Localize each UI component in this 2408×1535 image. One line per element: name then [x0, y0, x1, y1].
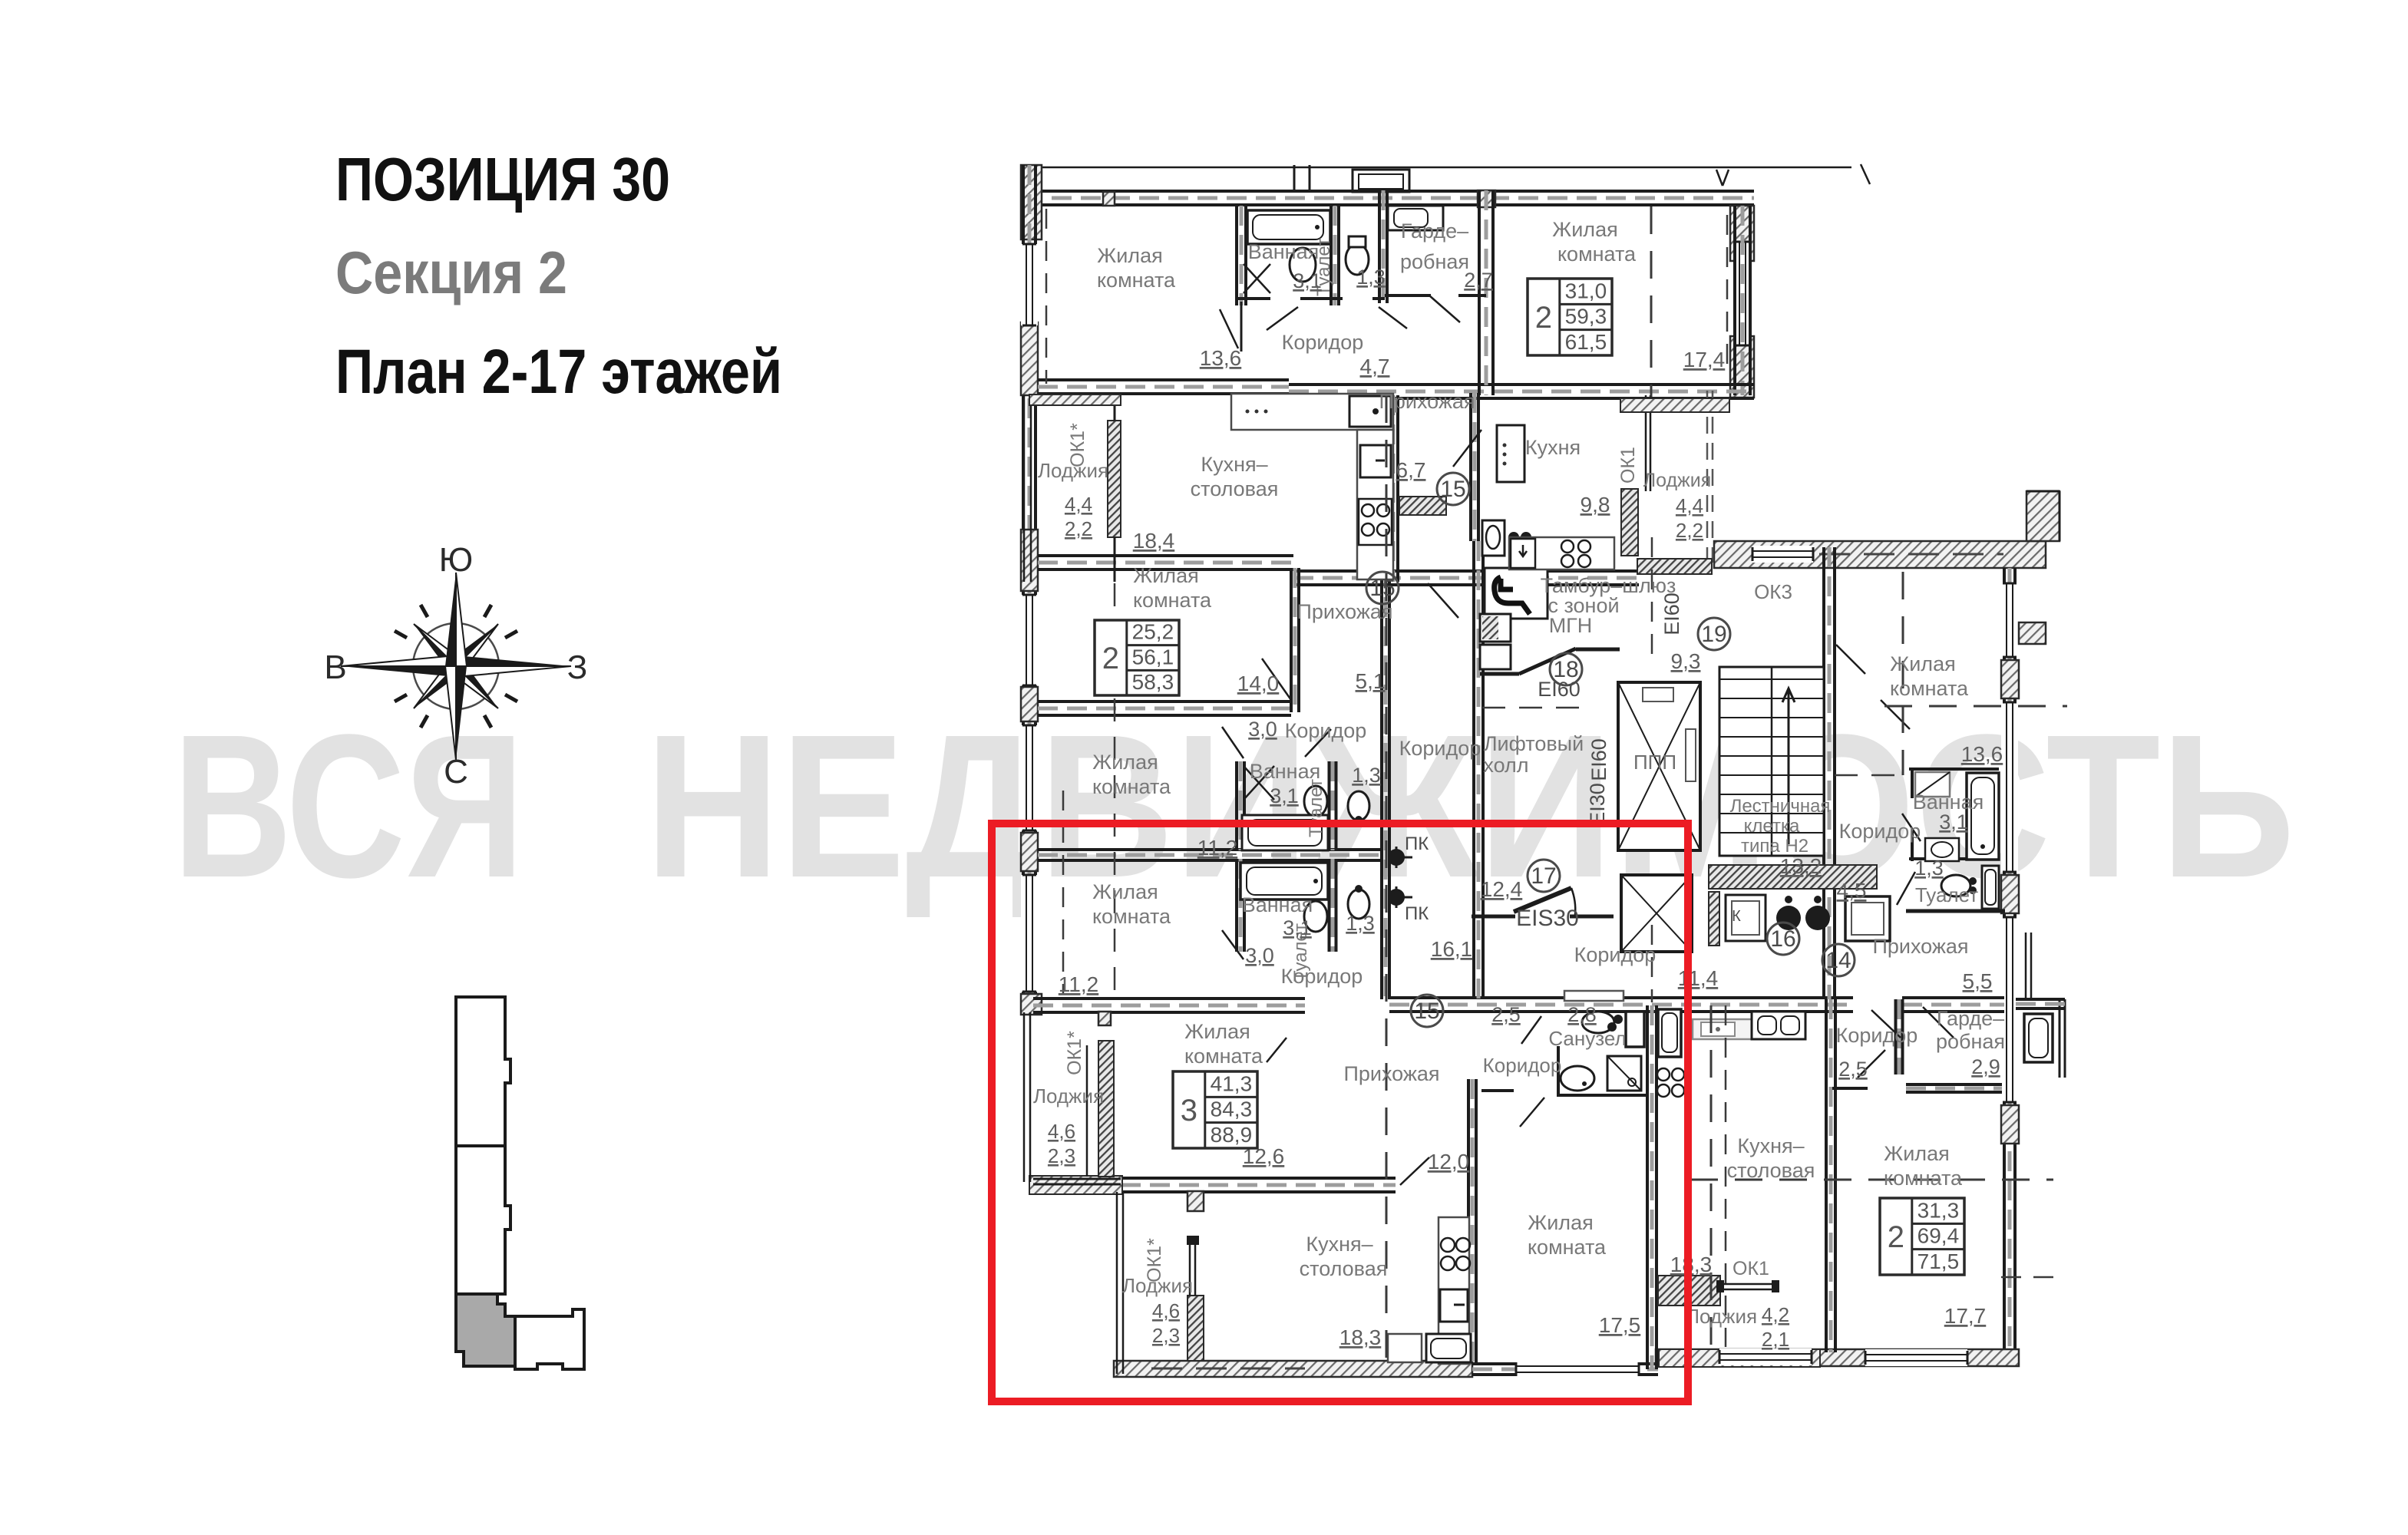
svg-text:41,3: 41,3 [1211, 1071, 1253, 1095]
svg-text:ППП: ППП [1633, 751, 1676, 774]
svg-text:14,0: 14,0 [1237, 672, 1280, 695]
svg-text:Коридор: Коридор [1839, 820, 1921, 843]
svg-text:18,4: 18,4 [1133, 529, 1175, 553]
svg-text:5,5: 5,5 [1963, 969, 1993, 993]
svg-text:15: 15 [1414, 999, 1439, 1024]
svg-text:2,2: 2,2 [1065, 517, 1092, 540]
svg-text:Кухня: Кухня [1525, 436, 1581, 459]
svg-text:ОК1*: ОК1* [1067, 423, 1088, 467]
svg-text:19: 19 [1701, 622, 1726, 647]
svg-text:Туалет: Туалет [1915, 883, 1978, 906]
svg-text:9,8: 9,8 [1581, 493, 1610, 517]
svg-text:НЕДВИЖИМОСТЬ: НЕДВИЖИМОСТЬ [645, 692, 2295, 920]
svg-text:З: З [567, 649, 588, 686]
svg-text:3,1: 3,1 [1939, 810, 1968, 834]
svg-text:Коридор: Коридор [1574, 943, 1657, 966]
svg-text:4,4: 4,4 [1065, 493, 1092, 516]
svg-text:робная: робная [1400, 250, 1469, 273]
svg-text:6,7: 6,7 [1396, 458, 1426, 482]
svg-text:12,4: 12,4 [1481, 877, 1523, 901]
svg-text:ВСЯ: ВСЯ [173, 692, 524, 920]
svg-text:2,3: 2,3 [1048, 1144, 1075, 1167]
svg-text:31,0: 31,0 [1565, 279, 1607, 302]
svg-text:3,1: 3,1 [1270, 784, 1299, 807]
svg-text:2: 2 [1102, 642, 1119, 675]
svg-text:2: 2 [1888, 1220, 1904, 1254]
svg-text:Коридор: Коридор [1483, 1054, 1562, 1077]
svg-text:столовая: столовая [1727, 1159, 1815, 1182]
svg-text:План 2-17 этажей: План 2-17 этажей [335, 337, 782, 407]
svg-text:1,3: 1,3 [1356, 266, 1386, 289]
svg-text:18: 18 [1553, 657, 1578, 682]
svg-text:11,4: 11,4 [1678, 966, 1718, 990]
svg-text:ОК1*: ОК1* [1064, 1031, 1085, 1075]
svg-text:ОК3: ОК3 [1754, 580, 1792, 603]
svg-text:56,1: 56,1 [1132, 645, 1174, 668]
svg-text:Туалет: Туалет [1306, 779, 1326, 837]
svg-text:комната: комната [1528, 1236, 1607, 1259]
svg-text:84,3: 84,3 [1211, 1098, 1253, 1121]
svg-text:4,2: 4,2 [1762, 1303, 1789, 1326]
svg-text:EI60: EI60 [1660, 593, 1683, 635]
svg-text:Ванная: Ванная [1242, 893, 1313, 916]
svg-text:3,0: 3,0 [1245, 944, 1274, 967]
svg-text:11,2: 11,2 [1059, 972, 1098, 996]
svg-text:Лоджия: Лоджия [1033, 1084, 1104, 1108]
svg-text:Жилая: Жилая [1890, 652, 1955, 675]
svg-text:25,2: 25,2 [1132, 620, 1174, 644]
svg-text:комната: комната [1184, 1045, 1263, 1068]
svg-text:МГН: МГН [1549, 614, 1593, 637]
svg-text:Лоджия: Лоджия [1686, 1305, 1757, 1328]
svg-text:EIS30: EIS30 [1516, 906, 1579, 931]
svg-text:Коридор: Коридор [1399, 737, 1481, 760]
svg-text:2: 2 [1535, 301, 1552, 335]
svg-text:16: 16 [1770, 926, 1795, 952]
svg-text:комната: комната [1092, 905, 1171, 928]
svg-text:1,3: 1,3 [1914, 857, 1944, 880]
svg-text:3: 3 [1181, 1094, 1197, 1127]
svg-text:ПОЗИЦИЯ 30: ПОЗИЦИЯ 30 [335, 145, 670, 213]
svg-text:холл: холл [1483, 754, 1528, 777]
svg-text:2,3: 2,3 [1152, 1324, 1180, 1347]
svg-text:Жилая: Жилая [1528, 1211, 1593, 1234]
svg-text:Жилая: Жилая [1552, 218, 1617, 241]
svg-text:Санузел: Санузел [1548, 1027, 1626, 1050]
svg-text:ОК1: ОК1 [1617, 447, 1639, 484]
svg-text:4,6: 4,6 [1152, 1299, 1180, 1322]
svg-text:комната: комната [1097, 269, 1176, 292]
svg-text:Ванная: Ванная [1248, 240, 1319, 263]
svg-text:58,3: 58,3 [1132, 670, 1174, 694]
svg-text:Коридор: Коридор [1285, 719, 1367, 742]
svg-text:Жилая: Жилая [1184, 1020, 1250, 1043]
svg-text:Лестничная: Лестничная [1730, 796, 1831, 817]
svg-text:2,1: 2,1 [1762, 1328, 1789, 1351]
svg-text:14: 14 [1825, 948, 1851, 973]
svg-text:Коридор: Коридор [1836, 1024, 1918, 1047]
svg-text:Жилая: Жилая [1133, 564, 1198, 587]
svg-text:69,4: 69,4 [1917, 1224, 1960, 1248]
svg-text:17: 17 [1531, 863, 1556, 889]
svg-text:ПК: ПК [1405, 834, 1429, 854]
svg-text:комната: комната [1133, 589, 1212, 612]
svg-text:типа Н2: типа Н2 [1741, 836, 1808, 857]
svg-text:Секция 2: Секция 2 [335, 239, 567, 306]
svg-text:ОК1*: ОК1* [1144, 1238, 1165, 1282]
svg-text:Прихожая: Прихожая [1872, 935, 1968, 958]
svg-text:Кухня–: Кухня– [1306, 1233, 1372, 1256]
svg-text:59,3: 59,3 [1565, 305, 1607, 328]
svg-text:Гарде–: Гарде– [1401, 220, 1468, 243]
svg-text:Коридор: Коридор [1282, 331, 1364, 354]
svg-text:2,8: 2,8 [1567, 1003, 1597, 1026]
svg-text:клетка: клетка [1744, 816, 1800, 837]
svg-text:EI30: EI30 [1586, 783, 1609, 826]
svg-text:31,3: 31,3 [1917, 1198, 1960, 1222]
svg-text:1,3: 1,3 [1346, 912, 1375, 935]
svg-text:Жилая: Жилая [1884, 1142, 1949, 1165]
svg-text:12,0: 12,0 [1428, 1150, 1470, 1174]
svg-text:Кухня–: Кухня– [1201, 453, 1267, 476]
svg-text:EI60: EI60 [1587, 738, 1610, 781]
svg-text:4,7: 4,7 [1360, 355, 1390, 378]
svg-text:2,5: 2,5 [1838, 1058, 1868, 1081]
svg-text:17,5: 17,5 [1599, 1313, 1641, 1337]
svg-text:комната: комната [1890, 677, 1969, 700]
svg-text:Ю: Ю [439, 541, 473, 579]
svg-text:Гарде–: Гарде– [1937, 1007, 2004, 1030]
svg-text:2,5: 2,5 [1491, 1003, 1521, 1026]
svg-text:13,6: 13,6 [1200, 346, 1242, 370]
svg-text:столовая: столовая [1191, 477, 1279, 500]
svg-text:4,4: 4,4 [1676, 494, 1703, 517]
svg-text:3,0: 3,0 [1248, 718, 1277, 741]
svg-text:Лоджия: Лоджия [1643, 470, 1712, 491]
svg-text:11,2: 11,2 [1197, 836, 1237, 860]
svg-text:61,5: 61,5 [1565, 330, 1607, 354]
svg-text:столовая: столовая [1300, 1257, 1388, 1280]
svg-text:Прихожая: Прихожая [1343, 1062, 1439, 1085]
svg-text:1,3: 1,3 [1352, 764, 1381, 787]
svg-text:18,3: 18,3 [1339, 1325, 1382, 1349]
svg-text:4,5: 4,5 [1837, 879, 1867, 903]
svg-text:К: К [1732, 908, 1741, 925]
svg-text:Кухня–: Кухня– [1737, 1134, 1804, 1157]
svg-text:робная: робная [1936, 1030, 2005, 1053]
svg-text:2,7: 2,7 [1464, 269, 1493, 292]
svg-text:2,2: 2,2 [1676, 519, 1703, 542]
svg-text:2,9: 2,9 [1971, 1055, 2000, 1078]
svg-text:71,5: 71,5 [1917, 1249, 1960, 1273]
svg-text:Жилая: Жилая [1097, 244, 1162, 267]
svg-text:ОК1: ОК1 [1733, 1258, 1769, 1279]
svg-text:15: 15 [1440, 477, 1465, 502]
svg-text:комната: комната [1884, 1167, 1963, 1190]
svg-text:5,1: 5,1 [1356, 669, 1386, 693]
svg-text:9,3: 9,3 [1671, 649, 1701, 673]
svg-text:В: В [324, 649, 346, 686]
svg-text:комната: комната [1557, 243, 1637, 266]
svg-text:17,4: 17,4 [1683, 348, 1726, 371]
svg-text:15: 15 [1369, 576, 1395, 601]
svg-text:13,2: 13,2 [1780, 854, 1822, 878]
svg-text:Жилая: Жилая [1092, 751, 1158, 774]
svg-text:Прихожая: Прихожая [1379, 390, 1475, 413]
svg-text:17,7: 17,7 [1944, 1304, 1987, 1328]
svg-text:3,1: 3,1 [1283, 916, 1312, 939]
svg-text:88,9: 88,9 [1211, 1123, 1253, 1147]
svg-text:3,1: 3,1 [1293, 269, 1322, 292]
svg-text:С: С [444, 753, 468, 791]
svg-text:Лифтовый: Лифтовый [1484, 732, 1584, 755]
svg-text:Жилая: Жилая [1092, 880, 1158, 903]
svg-text:16,1: 16,1 [1431, 937, 1473, 961]
svg-text:4,6: 4,6 [1048, 1120, 1075, 1143]
svg-text:комната: комната [1092, 775, 1171, 798]
svg-text:13,6: 13,6 [1961, 742, 2003, 766]
svg-text:ПК: ПК [1405, 903, 1429, 924]
